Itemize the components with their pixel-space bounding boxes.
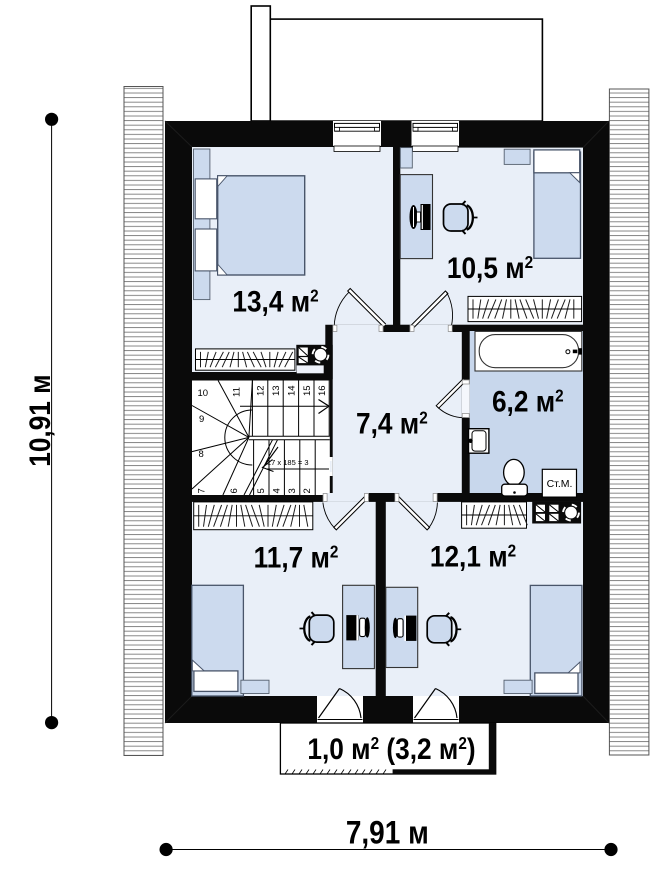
svg-text:7,91 м: 7,91 м: [346, 816, 429, 851]
svg-text:10,91 м: 10,91 м: [22, 374, 56, 466]
svg-text:14: 14: [286, 385, 297, 396]
svg-text:6,2 м2: 6,2 м2: [492, 384, 564, 418]
svg-text:10: 10: [198, 388, 209, 399]
svg-text:13: 13: [271, 385, 282, 396]
svg-text:6: 6: [229, 488, 240, 493]
svg-text:2: 2: [302, 488, 313, 493]
svg-text:1,0 м2 (3,2 м2): 1,0 м2 (3,2 м2): [307, 731, 475, 765]
svg-text:4: 4: [271, 488, 282, 493]
svg-text:16: 16: [317, 385, 328, 396]
svg-text:9: 9: [199, 414, 204, 425]
svg-text:12,1 м2: 12,1 м2: [430, 539, 516, 573]
svg-text:7: 7: [197, 488, 208, 493]
svg-text:Ст.М.: Ст.М.: [547, 478, 573, 490]
svg-text:11: 11: [232, 387, 243, 397]
svg-text:3: 3: [287, 488, 298, 493]
svg-text:17 x 185 = 3: 17 x 185 = 3: [267, 458, 309, 467]
svg-text:12: 12: [256, 385, 267, 396]
svg-text:5: 5: [256, 488, 267, 493]
svg-text:13,4 м2: 13,4 м2: [232, 284, 318, 318]
svg-text:10,5 м2: 10,5 м2: [447, 250, 533, 284]
svg-text:8: 8: [199, 449, 204, 460]
svg-text:15: 15: [302, 385, 313, 396]
svg-text:11,7 м2: 11,7 м2: [254, 540, 339, 574]
svg-text:7,4 м2: 7,4 м2: [356, 406, 428, 440]
